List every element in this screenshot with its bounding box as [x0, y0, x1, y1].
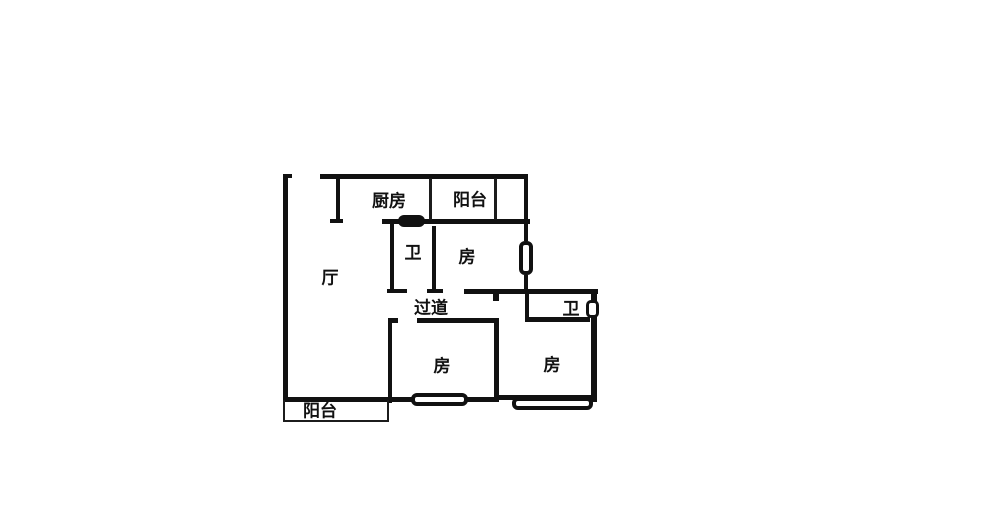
- window-upper-right-wall: [519, 241, 533, 275]
- room-label-bath-2: 卫: [563, 301, 580, 318]
- door-jamb-stub: [493, 293, 499, 301]
- room-label-bedroom-right: 房: [544, 357, 561, 374]
- top-strip-divider-kitchen-balcony: [429, 178, 432, 220]
- upper-right-wall-bottom: [524, 275, 528, 294]
- kitchen-left-wall: [336, 176, 340, 222]
- room-label-corridor: 过道: [414, 300, 448, 317]
- bath2-bottom-wall: [525, 317, 590, 322]
- corridor-bottom-wall: [417, 318, 499, 323]
- corridor-top-wall-b: [427, 289, 443, 293]
- upper-right-wall-top: [524, 176, 528, 241]
- room-label-living-room: 厅: [322, 270, 339, 287]
- corridor-top-wall-a: [387, 289, 407, 293]
- window-bedroom-right: [512, 397, 593, 410]
- bedroom-mid-left-wall: [388, 318, 392, 403]
- room-label-balcony-top: 阳台: [453, 192, 487, 209]
- corridor-top-wall-c: [464, 289, 598, 294]
- bath1-right-wall: [432, 226, 436, 292]
- kitchen-bottom-cap: [330, 219, 343, 223]
- outer-left-wall: [283, 174, 288, 401]
- entry-left-cap: [283, 174, 292, 178]
- window-bath2-right-wall: [586, 300, 599, 318]
- bedroom-shared-wall: [494, 318, 499, 402]
- bath1-left-wall: [390, 222, 394, 292]
- room-label-bath-1: 卫: [405, 245, 422, 262]
- top-strip-divider-balcony-right: [494, 178, 497, 220]
- floor-plan: 厨房阳台卫房厅过道卫房房阳台: [0, 0, 1000, 509]
- balcony-outline-right: [387, 400, 389, 422]
- room-label-balcony-bottom: 阳台: [303, 403, 337, 420]
- room-label-bedroom-top: 房: [459, 249, 476, 266]
- balcony-outline-left: [283, 400, 285, 422]
- window-bedroom-mid: [411, 393, 468, 406]
- kitchen-sliding-door-panel: [398, 215, 425, 227]
- room-label-bedroom-mid: 房: [434, 358, 451, 375]
- screenshot-canvas: { "canvas": { "width": 1000, "height": 5…: [0, 0, 1000, 509]
- room-label-kitchen: 厨房: [372, 193, 406, 210]
